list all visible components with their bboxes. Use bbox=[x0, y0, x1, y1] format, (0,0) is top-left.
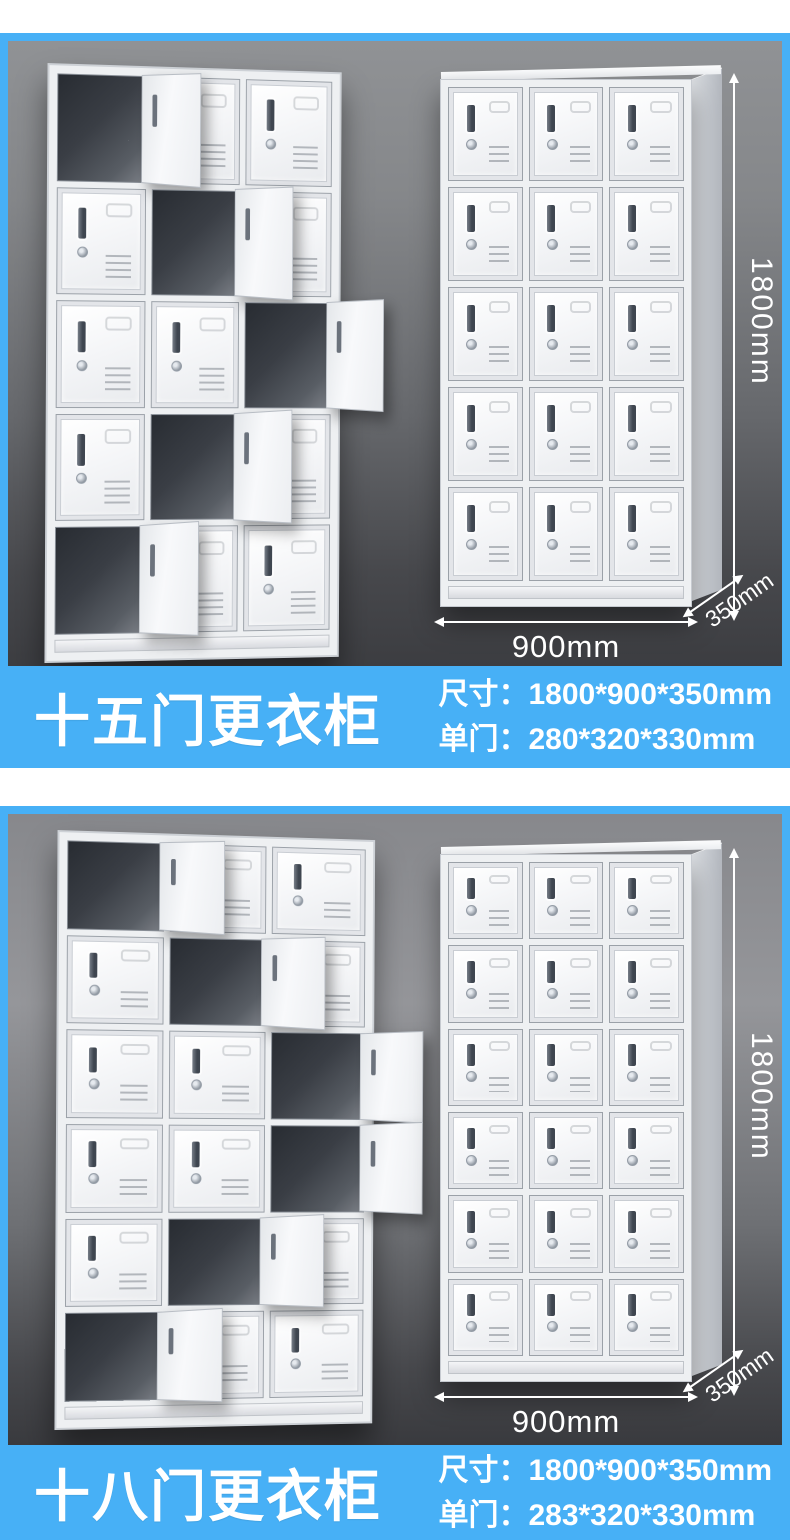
open-door bbox=[157, 1307, 223, 1402]
emboss-plate bbox=[322, 1231, 350, 1242]
vent-slats-icon bbox=[570, 146, 590, 166]
angled-open-locker-photo bbox=[46, 63, 351, 663]
vent-slats-icon bbox=[650, 910, 670, 926]
product-detail-image: 1800mm 900mm 350mm 十五门更衣柜 尺寸：1800*900*35… bbox=[0, 0, 790, 1540]
handle-slot-icon bbox=[547, 305, 555, 332]
handle-slot-icon bbox=[467, 105, 475, 132]
keylock-icon bbox=[627, 1321, 638, 1332]
emboss-plate bbox=[489, 201, 510, 213]
vent-slats-icon bbox=[221, 1365, 248, 1384]
keylock-icon bbox=[627, 988, 638, 999]
vent-slats-icon bbox=[120, 1085, 147, 1103]
locker-door bbox=[71, 940, 159, 1020]
emboss-plate bbox=[650, 1291, 671, 1301]
locker-cabinet bbox=[44, 63, 341, 663]
locker-cell bbox=[270, 1032, 364, 1120]
locker-door bbox=[276, 852, 361, 931]
product-banner: 十八门更衣柜 尺寸：1800*900*350mm 单门：283*320*330m… bbox=[8, 1445, 782, 1540]
front-locker-photo: 1800mm 900mm 350mm bbox=[428, 844, 782, 1434]
handle-slot-icon bbox=[628, 105, 636, 132]
locker-cell bbox=[609, 1029, 684, 1106]
vent-slats-icon bbox=[489, 546, 509, 566]
locker-cell bbox=[170, 937, 266, 1026]
keylock-icon bbox=[88, 1079, 99, 1090]
locker-cell bbox=[529, 387, 604, 481]
handle-slot-icon bbox=[467, 405, 475, 432]
emboss-plate bbox=[321, 1323, 349, 1335]
height-dimension-arrow bbox=[733, 852, 735, 1392]
product-banner: 十五门更衣柜 尺寸：1800*900*350mm 单门：280*320*330m… bbox=[8, 666, 782, 768]
vent-slats-icon bbox=[489, 246, 509, 266]
locker-cell bbox=[169, 1031, 265, 1119]
emboss-plate bbox=[489, 1041, 510, 1051]
vent-slats-icon bbox=[105, 481, 130, 504]
locker-door bbox=[534, 392, 599, 476]
handle-slot-icon bbox=[77, 434, 85, 465]
handle-slot-icon bbox=[88, 1236, 96, 1261]
locker-cell bbox=[529, 1112, 604, 1189]
handle-slot-icon bbox=[628, 405, 636, 432]
keylock-icon bbox=[547, 988, 558, 999]
door-grid bbox=[448, 862, 684, 1356]
vent-slats-icon bbox=[489, 993, 509, 1009]
keylock-icon bbox=[466, 988, 477, 999]
locker-cabinet bbox=[440, 79, 692, 607]
locker-cell bbox=[448, 945, 523, 1022]
locker-cell bbox=[269, 1310, 363, 1398]
locker-door bbox=[453, 492, 518, 576]
emboss-plate bbox=[120, 1138, 149, 1150]
handle-slot-icon bbox=[467, 1294, 475, 1316]
locker-door bbox=[534, 92, 599, 176]
keylock-icon bbox=[89, 984, 100, 995]
locker-cell bbox=[609, 287, 684, 381]
locker-door bbox=[70, 1129, 158, 1208]
handle-slot-icon bbox=[467, 1044, 475, 1066]
locker-door bbox=[453, 950, 518, 1017]
emboss-plate bbox=[489, 1208, 510, 1218]
emboss-plate bbox=[293, 207, 318, 221]
top-white-strip bbox=[0, 0, 790, 33]
vent-slats-icon bbox=[222, 1179, 249, 1197]
vent-slats-icon bbox=[201, 144, 225, 167]
keylock-icon bbox=[76, 473, 87, 484]
vent-slats-icon bbox=[321, 1364, 347, 1382]
locker-door bbox=[60, 419, 140, 516]
locker-cell bbox=[65, 1124, 163, 1213]
section-fifteen-door: 1800mm 900mm 350mm 十五门更衣柜 尺寸：1800*900*35… bbox=[0, 33, 790, 768]
handle-slot-icon bbox=[467, 1128, 475, 1150]
locker-cell bbox=[529, 862, 604, 939]
locker-cell bbox=[448, 187, 523, 281]
locker-cell bbox=[151, 189, 239, 297]
keylock-icon bbox=[466, 1071, 477, 1082]
vent-slats-icon bbox=[570, 910, 590, 926]
emboss-plate bbox=[489, 1125, 510, 1135]
handle-slot-icon bbox=[628, 505, 636, 532]
locker-door bbox=[453, 1284, 518, 1351]
locker-door bbox=[614, 950, 679, 1017]
handle-slot-icon bbox=[628, 1294, 636, 1316]
vent-slats-icon bbox=[199, 368, 223, 391]
handle-slot-icon bbox=[628, 961, 636, 983]
locker-cell bbox=[529, 1195, 604, 1272]
emboss-plate bbox=[650, 1041, 671, 1051]
handle-slot-icon bbox=[467, 878, 475, 900]
vent-slats-icon bbox=[119, 1273, 146, 1291]
locker-base bbox=[64, 1401, 363, 1420]
vent-slats-icon bbox=[489, 1160, 509, 1176]
product-specs: 尺寸：1800*900*350mm 单门：280*320*330mm bbox=[438, 672, 772, 762]
keylock-icon bbox=[466, 1238, 477, 1249]
locker-door bbox=[174, 1130, 260, 1208]
locker-base bbox=[448, 1361, 684, 1374]
handle-slot-icon bbox=[89, 1142, 97, 1167]
vent-slats-icon bbox=[650, 1243, 670, 1259]
product-specs: 尺寸：1800*900*350mm 单门：283*320*330mm bbox=[438, 1448, 772, 1538]
keylock-icon bbox=[466, 139, 477, 150]
vent-slats-icon bbox=[650, 1160, 670, 1176]
vent-slats-icon bbox=[489, 446, 509, 466]
vent-slats-icon bbox=[489, 1327, 509, 1343]
open-door bbox=[234, 409, 293, 523]
vent-slats-icon bbox=[650, 1327, 670, 1343]
vent-slats-icon bbox=[650, 546, 670, 566]
locker-door bbox=[534, 192, 599, 276]
keylock-icon bbox=[627, 339, 638, 350]
handle-slot-icon bbox=[547, 878, 555, 900]
vent-slats-icon bbox=[223, 899, 250, 918]
locker-cell bbox=[56, 187, 146, 295]
width-dimension-label: 900mm bbox=[438, 1404, 694, 1440]
photo-area-fifteen: 1800mm 900mm 350mm bbox=[8, 41, 782, 666]
emboss-plate bbox=[221, 1325, 250, 1337]
keylock-icon bbox=[547, 905, 558, 916]
locker-cell bbox=[243, 525, 330, 632]
handle-slot-icon bbox=[628, 878, 636, 900]
locker-door bbox=[274, 1315, 359, 1393]
locker-door bbox=[453, 1117, 518, 1184]
locker-cell bbox=[609, 487, 684, 581]
open-door bbox=[359, 1122, 423, 1215]
vent-slats-icon bbox=[570, 346, 590, 366]
keylock-icon bbox=[191, 1173, 202, 1184]
emboss-plate bbox=[292, 429, 317, 443]
keylock-icon bbox=[547, 1238, 558, 1249]
emboss-plate bbox=[650, 101, 671, 113]
open-door bbox=[139, 521, 199, 636]
locker-door bbox=[453, 867, 518, 934]
locker-cell bbox=[448, 1112, 523, 1189]
handle-slot-icon bbox=[628, 205, 636, 232]
vent-slats-icon bbox=[322, 1272, 348, 1290]
locker-cell bbox=[245, 79, 332, 187]
locker-cell bbox=[57, 73, 147, 182]
emboss-plate bbox=[489, 401, 510, 413]
locker-cell bbox=[67, 840, 165, 931]
emboss-plate bbox=[570, 201, 591, 213]
keylock-icon bbox=[266, 138, 277, 149]
vent-slats-icon bbox=[489, 1243, 509, 1259]
handle-slot-icon bbox=[467, 305, 475, 332]
locker-cell bbox=[529, 945, 604, 1022]
spec-overall-size: 尺寸：1800*900*350mm bbox=[438, 1448, 772, 1493]
handle-slot-icon bbox=[547, 405, 555, 432]
locker-cell bbox=[448, 1195, 523, 1272]
locker-door bbox=[534, 867, 599, 934]
locker-door bbox=[61, 305, 141, 403]
keylock-icon bbox=[627, 1238, 638, 1249]
locker-door bbox=[614, 92, 679, 176]
locker-cell bbox=[609, 1279, 684, 1356]
vent-slats-icon bbox=[121, 991, 148, 1010]
vent-slats-icon bbox=[650, 246, 670, 266]
vent-slats-icon bbox=[570, 993, 590, 1009]
keylock-icon bbox=[263, 584, 274, 595]
locker-door bbox=[453, 92, 518, 176]
locker-cell bbox=[609, 1195, 684, 1272]
keylock-icon bbox=[547, 1155, 558, 1166]
locker-door bbox=[453, 1034, 518, 1101]
emboss-plate bbox=[650, 1208, 671, 1218]
vent-slats-icon bbox=[291, 591, 315, 614]
locker-door bbox=[614, 192, 679, 276]
locker-base bbox=[54, 635, 329, 653]
handle-slot-icon bbox=[547, 205, 555, 232]
vent-slats-icon bbox=[489, 1077, 509, 1093]
emboss-plate bbox=[489, 958, 510, 968]
locker-cell bbox=[448, 387, 523, 481]
handle-slot-icon bbox=[264, 545, 272, 576]
keylock-icon bbox=[466, 905, 477, 916]
handle-slot-icon bbox=[628, 305, 636, 332]
locker-cell bbox=[448, 1029, 523, 1106]
emboss-plate bbox=[650, 1125, 671, 1135]
locker-door bbox=[534, 1200, 599, 1267]
open-door bbox=[360, 1031, 424, 1124]
locker-door bbox=[453, 192, 518, 276]
emboss-plate bbox=[223, 859, 252, 871]
spec-overall-size: 尺寸：1800*900*350mm bbox=[438, 672, 772, 717]
vent-slats-icon bbox=[570, 546, 590, 566]
locker-door bbox=[156, 306, 235, 403]
keylock-icon bbox=[627, 1071, 638, 1082]
handle-slot-icon bbox=[467, 1211, 475, 1233]
height-dimension-label: 1800mm bbox=[744, 1032, 778, 1161]
width-dimension-label: 900mm bbox=[438, 629, 694, 665]
keylock-icon bbox=[291, 1359, 301, 1370]
product-title: 十八门更衣柜 bbox=[34, 1452, 382, 1533]
locker-door bbox=[70, 1223, 158, 1302]
locker-door bbox=[534, 292, 599, 376]
emboss-plate bbox=[294, 96, 319, 111]
keylock-icon bbox=[171, 360, 182, 371]
keylock-icon bbox=[627, 1155, 638, 1166]
locker-cell bbox=[609, 187, 684, 281]
locker-door bbox=[614, 867, 679, 934]
keylock-icon bbox=[547, 239, 558, 250]
emboss-plate bbox=[121, 950, 150, 962]
keylock-icon bbox=[466, 239, 477, 250]
vent-slats-icon bbox=[570, 1077, 590, 1093]
locker-door bbox=[453, 292, 518, 376]
locker-cell bbox=[66, 1029, 164, 1118]
vent-slats-icon bbox=[650, 146, 670, 166]
handle-slot-icon bbox=[547, 505, 555, 532]
emboss-plate bbox=[489, 301, 510, 313]
cabinet-side-panel bbox=[692, 67, 722, 601]
height-dimension-arrow bbox=[733, 77, 735, 617]
locker-door bbox=[614, 1284, 679, 1351]
open-door bbox=[235, 187, 294, 301]
emboss-plate bbox=[105, 429, 131, 443]
handle-slot-icon bbox=[192, 1049, 200, 1074]
handle-slot-icon bbox=[547, 1211, 555, 1233]
vent-slats-icon bbox=[324, 902, 350, 921]
keylock-icon bbox=[547, 1321, 558, 1332]
handle-slot-icon bbox=[628, 1211, 636, 1233]
keylock-icon bbox=[466, 339, 477, 350]
vent-slats-icon bbox=[650, 1077, 670, 1093]
locker-door bbox=[614, 1034, 679, 1101]
emboss-plate bbox=[570, 1041, 591, 1051]
locker-door bbox=[71, 1035, 159, 1114]
locker-cell bbox=[65, 1218, 163, 1307]
locker-door bbox=[614, 1117, 679, 1184]
section-eighteen-door: 1800mm 900mm 350mm 十八门更衣柜 尺寸：1800*900*35… bbox=[0, 806, 790, 1540]
emboss-plate bbox=[570, 958, 591, 968]
locker-door bbox=[248, 530, 325, 627]
locker-cabinet bbox=[440, 854, 692, 1382]
keylock-icon bbox=[466, 439, 477, 450]
locker-door bbox=[61, 192, 141, 290]
vent-slats-icon bbox=[650, 346, 670, 366]
emboss-plate bbox=[489, 1291, 510, 1301]
handle-slot-icon bbox=[628, 1128, 636, 1150]
handle-slot-icon bbox=[292, 1328, 300, 1353]
emboss-plate bbox=[323, 954, 351, 966]
locker-cell bbox=[55, 414, 145, 522]
handle-slot-icon bbox=[172, 322, 180, 353]
keylock-icon bbox=[627, 239, 638, 250]
vent-slats-icon bbox=[489, 346, 509, 366]
locker-cell bbox=[529, 1029, 604, 1106]
locker-cell bbox=[244, 302, 331, 408]
front-locker-photo: 1800mm 900mm 350mm bbox=[428, 69, 782, 659]
emboss-plate bbox=[570, 1291, 591, 1301]
keylock-icon bbox=[466, 539, 477, 550]
vent-slats-icon bbox=[198, 592, 222, 615]
vent-slats-icon bbox=[106, 255, 131, 278]
locker-door bbox=[614, 292, 679, 376]
locker-cell bbox=[270, 1125, 364, 1212]
locker-cell bbox=[609, 387, 684, 481]
locker-cell bbox=[529, 1279, 604, 1356]
locker-cell bbox=[529, 187, 604, 281]
handle-slot-icon bbox=[266, 100, 274, 131]
width-dimension-arrow bbox=[438, 621, 694, 623]
emboss-plate bbox=[570, 875, 591, 885]
emboss-plate bbox=[119, 1232, 148, 1244]
vent-slats-icon bbox=[222, 1086, 249, 1104]
handle-slot-icon bbox=[628, 1044, 636, 1066]
emboss-plate bbox=[650, 401, 671, 413]
handle-slot-icon bbox=[547, 961, 555, 983]
emboss-plate bbox=[106, 316, 132, 330]
vent-slats-icon bbox=[570, 1327, 590, 1343]
emboss-plate bbox=[201, 93, 227, 108]
keylock-icon bbox=[87, 1267, 98, 1278]
vent-slats-icon bbox=[120, 1179, 147, 1197]
locker-cell bbox=[448, 487, 523, 581]
handle-slot-icon bbox=[467, 205, 475, 232]
emboss-plate bbox=[570, 401, 591, 413]
vent-slats-icon bbox=[570, 1243, 590, 1259]
locker-cell bbox=[54, 526, 144, 634]
vent-slats-icon bbox=[650, 446, 670, 466]
locker-door bbox=[614, 1200, 679, 1267]
locker-door bbox=[534, 950, 599, 1017]
vent-slats-icon bbox=[293, 257, 317, 280]
locker-door bbox=[250, 84, 327, 182]
locker-base bbox=[448, 586, 684, 599]
keylock-icon bbox=[547, 439, 558, 450]
emboss-plate bbox=[650, 201, 671, 213]
locker-cell bbox=[66, 935, 164, 1025]
locker-cell bbox=[56, 300, 146, 408]
vent-slats-icon bbox=[292, 480, 316, 503]
emboss-plate bbox=[570, 301, 591, 313]
locker-door bbox=[453, 392, 518, 476]
keylock-icon bbox=[627, 439, 638, 450]
locker-door bbox=[614, 492, 679, 576]
locker-door bbox=[174, 1036, 260, 1114]
open-door bbox=[259, 1214, 324, 1308]
keylock-icon bbox=[627, 539, 638, 550]
keylock-icon bbox=[547, 139, 558, 150]
emboss-plate bbox=[489, 501, 510, 513]
emboss-plate bbox=[650, 301, 671, 313]
keylock-icon bbox=[547, 539, 558, 550]
handle-slot-icon bbox=[90, 953, 98, 978]
keylock-icon bbox=[627, 139, 638, 150]
handle-slot-icon bbox=[547, 105, 555, 132]
handle-slot-icon bbox=[294, 864, 302, 889]
width-dimension-arrow bbox=[438, 1396, 694, 1398]
keylock-icon bbox=[466, 1321, 477, 1332]
handle-slot-icon bbox=[77, 321, 85, 353]
open-door bbox=[261, 937, 326, 1031]
vent-slats-icon bbox=[105, 368, 130, 391]
keylock-icon bbox=[293, 895, 303, 906]
emboss-plate bbox=[222, 1138, 251, 1149]
locker-cell bbox=[529, 487, 604, 581]
locker-cell bbox=[529, 87, 604, 181]
vent-slats-icon bbox=[489, 146, 509, 166]
handle-slot-icon bbox=[89, 1047, 97, 1072]
emboss-plate bbox=[106, 203, 132, 218]
spec-single-door-size: 单门：283*320*330mm bbox=[438, 1493, 772, 1538]
locker-cell bbox=[448, 1279, 523, 1356]
open-door bbox=[142, 73, 202, 188]
locker-door bbox=[614, 392, 679, 476]
locker-cell bbox=[448, 287, 523, 381]
emboss-plate bbox=[489, 101, 510, 113]
keylock-icon bbox=[88, 1173, 99, 1184]
emboss-plate bbox=[570, 1208, 591, 1218]
vent-slats-icon bbox=[570, 446, 590, 466]
vent-slats-icon bbox=[650, 993, 670, 1009]
